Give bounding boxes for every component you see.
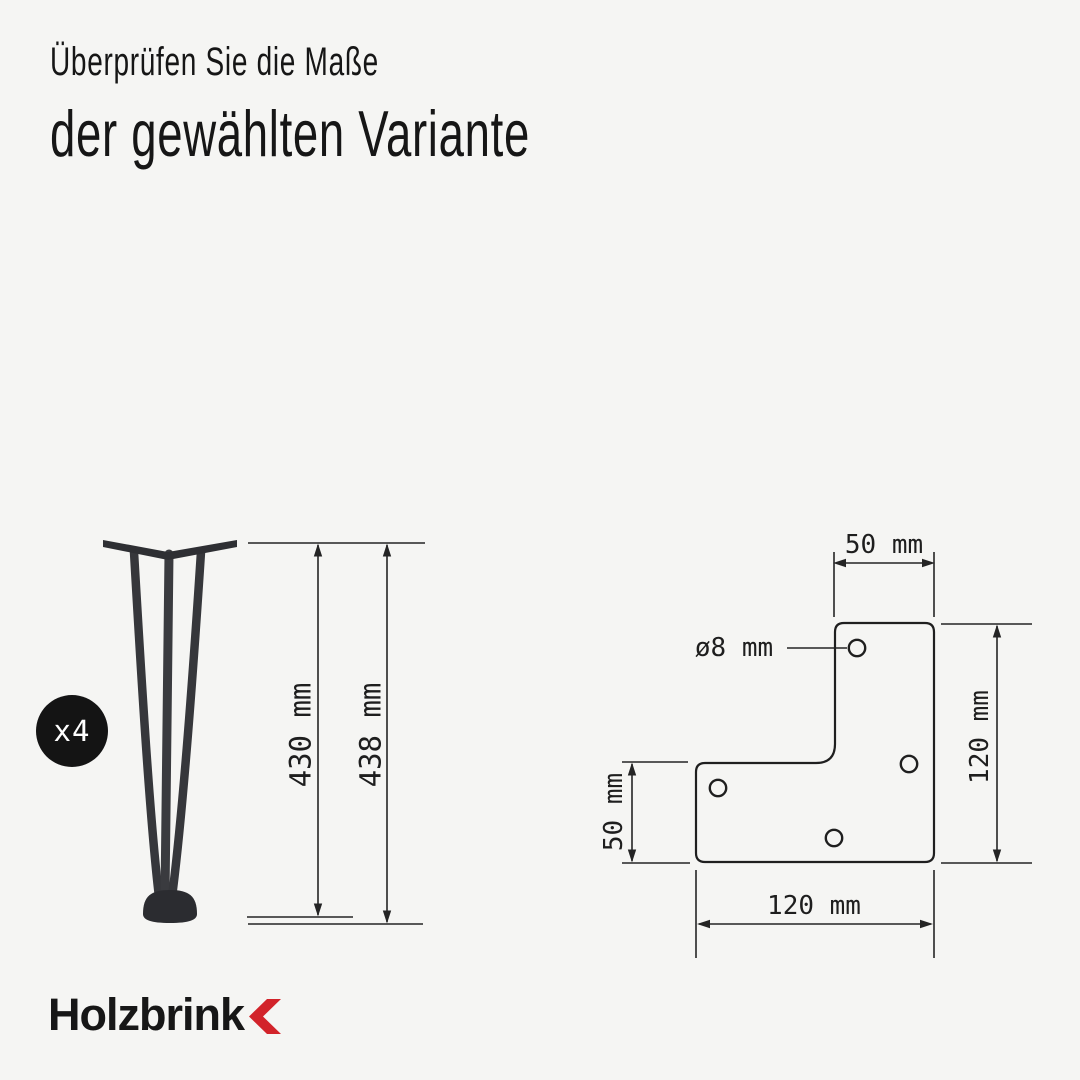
brand-logo: Holzbrink (48, 992, 282, 1037)
leg-foot (143, 890, 197, 923)
leg-dimension-lines (247, 543, 425, 924)
arrowhead (314, 904, 322, 917)
plate-hole-left (710, 780, 726, 796)
dimension-label-plate-top-width: 50 mm (845, 532, 923, 558)
quantity-badge-label: x4 (54, 714, 91, 748)
arrowhead (993, 850, 1001, 863)
leg-rod-right (172, 552, 201, 897)
dimension-label-plate-bottom-width: 120 mm (767, 893, 861, 919)
leg-rod-middle (165, 554, 169, 897)
leg-rod-left (134, 552, 159, 897)
dimension-label-plate-side-height: 120 mm (967, 690, 993, 784)
arrowhead (833, 559, 846, 567)
dimension-label-plate-left-height: 50 mm (601, 773, 627, 851)
dimension-label-hole-diameter: ø8 mm (695, 635, 773, 661)
brand-name: Holzbrink (48, 992, 244, 1037)
arrowhead (383, 544, 391, 557)
arrowhead (314, 544, 322, 557)
plate-hole-bottom (826, 830, 842, 846)
product-dimension-infographic: Überprüfen Sie die Maße der gewählten Va… (0, 0, 1080, 1080)
chevron-left-icon (249, 998, 282, 1035)
arrowhead (697, 920, 710, 928)
quantity-badge: x4 (36, 695, 108, 767)
arrowhead (922, 559, 935, 567)
arrowhead (628, 763, 636, 776)
dimension-label-leg-430: 430 mm (287, 683, 316, 788)
hairpin-leg-illustration (103, 540, 237, 923)
arrowhead (993, 625, 1001, 638)
arrowhead (920, 920, 933, 928)
dimension-label-leg-438: 438 mm (357, 683, 386, 788)
arrowhead (628, 850, 636, 863)
plate-hole-right (901, 756, 917, 772)
arrowhead (383, 911, 391, 924)
plate-hole-top (849, 640, 865, 656)
